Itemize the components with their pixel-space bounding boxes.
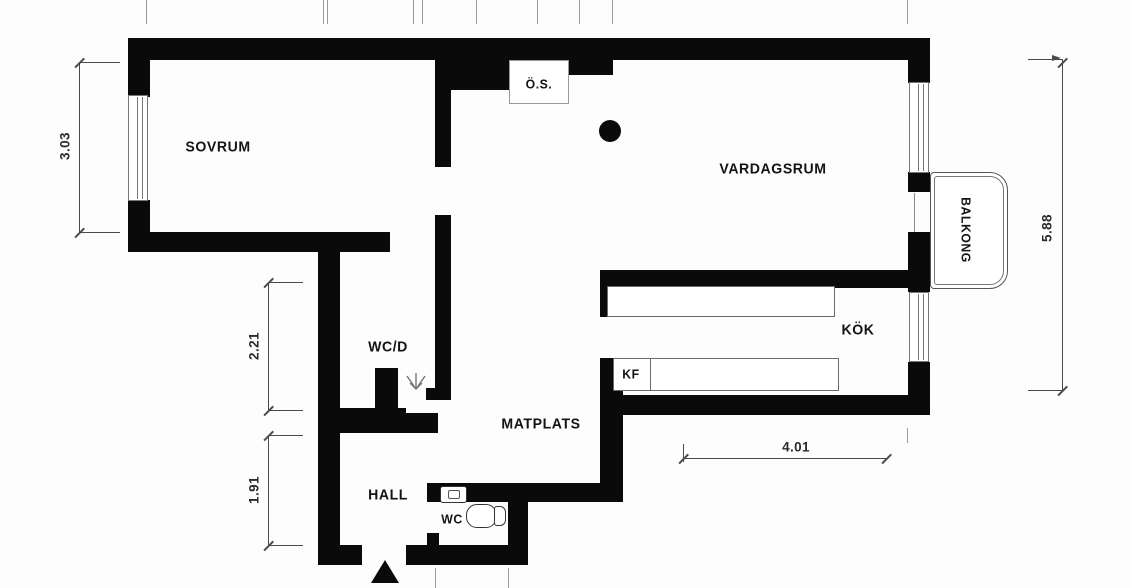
witness-line <box>537 0 538 24</box>
kf-label: KF <box>622 367 639 382</box>
entrance-arrow-icon <box>371 560 399 583</box>
column-icon <box>599 120 621 142</box>
wall-right-lower <box>908 362 930 415</box>
wall-right-mid <box>908 232 930 292</box>
window-pane <box>918 294 924 360</box>
room-label-wcd: WC/D <box>368 339 408 356</box>
dimension-label: 4.01 <box>782 440 810 455</box>
balcony-door-line <box>914 193 915 232</box>
wall-right-between-windows <box>908 172 930 192</box>
sink-icon <box>440 486 467 503</box>
wall-hall-north <box>318 408 406 433</box>
room-label-wc: WC <box>441 512 462 527</box>
witness-line <box>327 0 328 24</box>
window-pane <box>137 97 143 199</box>
window-pane <box>918 84 924 171</box>
dimension-label: 3.03 <box>58 132 73 160</box>
wall-hall-north-step <box>398 413 438 433</box>
wall-niche-right <box>568 60 613 75</box>
witness-line <box>612 0 613 24</box>
witness-line <box>422 0 423 24</box>
wall-bedroom-south <box>128 232 390 252</box>
wall-central-divider <box>435 215 451 398</box>
window-livingroom-icon <box>909 82 929 173</box>
window-kitchen-icon <box>909 292 929 362</box>
wall-niche-left <box>449 60 510 90</box>
room-label-sovrum: SOVRUM <box>185 139 250 156</box>
witness-line <box>579 0 580 24</box>
witness-line <box>907 0 908 24</box>
wall-wc-west-stub <box>427 533 439 545</box>
witness-line <box>323 0 324 24</box>
wall-top-exterior <box>128 38 930 60</box>
dimension-label: 1.91 <box>247 476 262 504</box>
wall-kitchen-west-lower <box>600 358 613 395</box>
wall-right-upper <box>908 38 930 83</box>
witness-line <box>146 0 147 24</box>
window-bedroom-icon <box>128 95 148 201</box>
wall-hall-south <box>318 545 362 565</box>
wall-central-foot <box>426 388 451 400</box>
room-label-hall: HALL <box>368 487 408 504</box>
kitchen-counter-upper <box>607 286 835 317</box>
dimension-label: 5.88 <box>1040 214 1055 242</box>
room-label-kok: KÖK <box>841 322 874 339</box>
wall-shower-stub <box>375 368 398 412</box>
witness-line <box>508 568 509 588</box>
witness-line <box>476 0 477 24</box>
wall-wc-east <box>508 502 528 564</box>
shower-drain-icon <box>403 370 429 394</box>
kitchen-counter-lower <box>613 358 839 391</box>
floorplan-canvas: BALKONG Ö.S. KF SOVRUM VARDAGSRUM KÖK WC… <box>0 0 1130 588</box>
wall-left-upper <box>128 38 150 97</box>
witness-line <box>413 0 414 24</box>
toilet-icon <box>466 504 510 529</box>
room-label-vardagsrum: VARDAGSRUM <box>719 161 826 178</box>
wall-kitchen-south <box>600 395 930 415</box>
dimension-label: 2.21 <box>247 332 262 360</box>
room-label-matplats: MATPLATS <box>501 416 580 433</box>
room-label-balkong: BALKONG <box>959 197 974 263</box>
witness-line <box>435 568 436 588</box>
os-label: Ö.S. <box>526 77 553 92</box>
